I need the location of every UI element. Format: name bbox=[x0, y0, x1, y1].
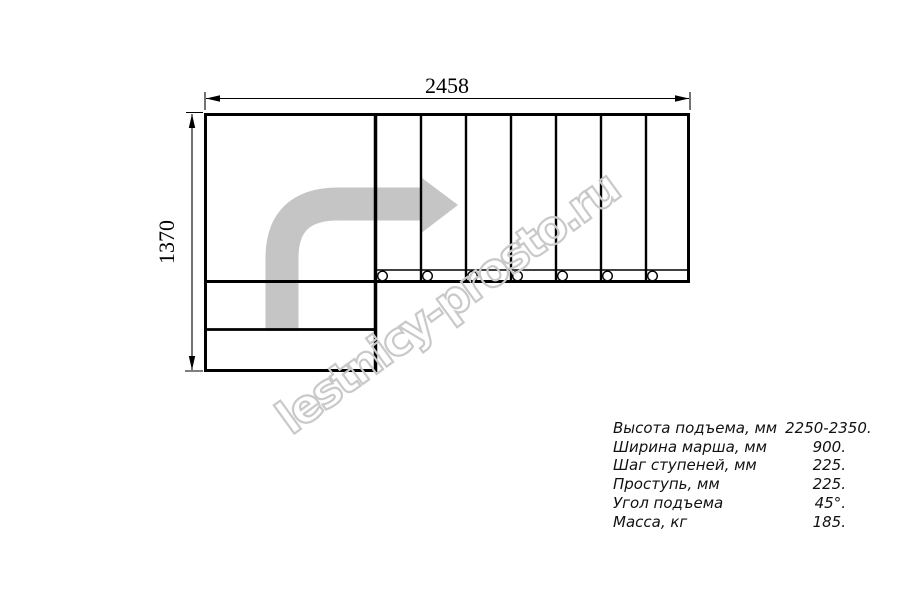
spec-table: Высота подъема, мм 2250-2350. Ширина мар… bbox=[613, 419, 846, 531]
baluster-circle bbox=[648, 271, 658, 281]
spec-label: Высота подъема, мм bbox=[613, 419, 777, 438]
dimension-arrow-right bbox=[675, 95, 689, 101]
spec-value: 900. bbox=[813, 438, 846, 457]
spec-label: Ширина марша, мм bbox=[613, 438, 767, 457]
spec-label: Проступь, мм bbox=[613, 475, 720, 494]
direction-arrow-head bbox=[420, 177, 458, 235]
spec-row: Угол подъема 45°. bbox=[613, 494, 846, 513]
baluster-circle bbox=[378, 271, 388, 281]
spec-row: Ширина марша, мм 900. bbox=[613, 438, 846, 457]
spec-value: 225. bbox=[813, 475, 846, 494]
spec-label: Масса, кг bbox=[613, 513, 687, 532]
spec-value: 225. bbox=[813, 456, 846, 475]
spec-row: Шаг ступеней, мм 225. bbox=[613, 456, 846, 475]
dimension-arrow-bottom bbox=[189, 356, 195, 370]
dimension-arrow-left bbox=[206, 95, 220, 101]
baluster-circle bbox=[423, 271, 433, 281]
spec-value: 45°. bbox=[815, 494, 846, 513]
spec-row: Масса, кг 185. bbox=[613, 513, 846, 532]
spec-row: Проступь, мм 225. bbox=[613, 475, 846, 494]
baluster-circle bbox=[603, 271, 613, 281]
baluster-circle bbox=[558, 271, 568, 281]
spec-row: Высота подъема, мм 2250-2350. bbox=[613, 419, 846, 438]
height-dimension bbox=[185, 113, 203, 372]
spec-label: Шаг ступеней, мм bbox=[613, 456, 757, 475]
width-dimension-label: 2458 bbox=[425, 73, 469, 98]
spec-label: Угол подъема bbox=[613, 494, 723, 513]
height-dimension-label: 1370 bbox=[154, 220, 179, 264]
dimension-arrow-top bbox=[189, 114, 195, 128]
spec-value: 2250-2350. bbox=[785, 419, 872, 438]
staircase-drawing-page: 2458 1370 lestnicy-prosto.ru Высота подъ… bbox=[0, 0, 900, 600]
spec-value: 185. bbox=[813, 513, 846, 532]
